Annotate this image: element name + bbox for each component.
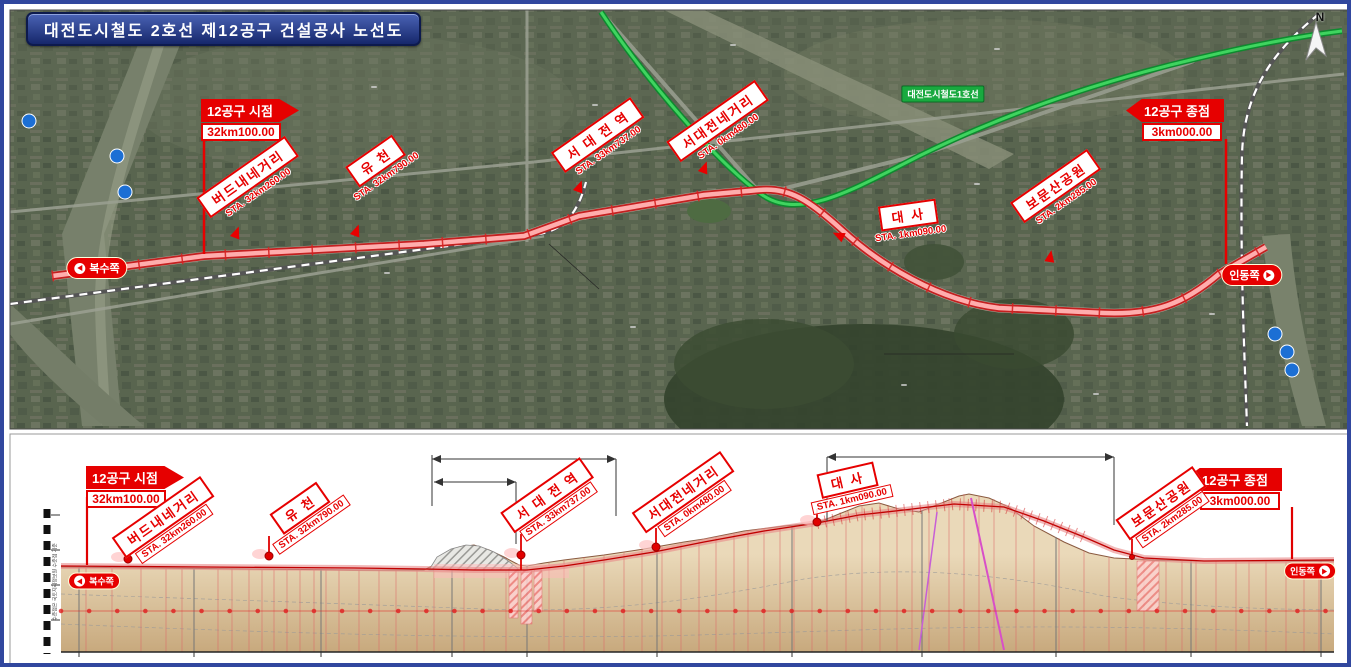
direction-label: 복수쪽 bbox=[89, 260, 119, 276]
district-label bbox=[1209, 313, 1215, 315]
direction-label: 인동쪽 bbox=[1229, 267, 1259, 283]
flag-title: 12공구 시점 bbox=[86, 466, 184, 489]
direction-arrow-icon bbox=[74, 263, 85, 274]
direction-arrow-icon bbox=[1264, 270, 1275, 281]
route-map-sheet: 대전도시철도 2호선 제12공구 건설공사 노선도 대전도시철도1호선 N 버드… bbox=[0, 0, 1351, 667]
station-callout: 서대전네거리 STA. 0km480.00 bbox=[632, 451, 743, 545]
map-section-start-flag: 12공구 시점 32km100.00 bbox=[201, 99, 299, 141]
river-name-badge bbox=[118, 185, 133, 200]
flag-value: 32km100.00 bbox=[201, 123, 281, 141]
district-label bbox=[994, 48, 1000, 50]
river-name-badge bbox=[1285, 363, 1300, 378]
river-name-badge bbox=[1268, 327, 1283, 342]
district-label bbox=[1093, 393, 1099, 395]
river-name-badge bbox=[110, 149, 125, 164]
direction-label: 복수쪽 bbox=[89, 575, 114, 588]
station-callout: 유 천 STA. 32km790.00 bbox=[257, 473, 351, 555]
profile-direction-indong: 인동쪽 bbox=[1284, 563, 1336, 580]
datum-note: 수준점은 국토지리정보원 수준점 기준 bbox=[52, 543, 59, 621]
district-label bbox=[974, 183, 980, 185]
flag-title: 12공구 종점 bbox=[1126, 99, 1224, 122]
district-label bbox=[730, 44, 736, 46]
map-section-end-flag: 12공구 종점 3km000.00 bbox=[1126, 99, 1224, 141]
direction-label: 인동쪽 bbox=[1290, 565, 1315, 578]
station-callout: 대 사 STA. 1km090.00 bbox=[867, 197, 951, 245]
station-callout: 대 사 STA. 1km090.00 bbox=[805, 459, 893, 515]
flag-value: 32km100.00 bbox=[86, 490, 166, 508]
direction-arrow-icon bbox=[1319, 566, 1330, 577]
river-name-badge bbox=[1280, 345, 1295, 360]
station-callout: 보문산공원 STA. 2km285.00 bbox=[1010, 149, 1108, 233]
direction-arrow-icon bbox=[74, 576, 85, 587]
profile-direction-boksu: 복수쪽 bbox=[68, 573, 120, 590]
river-name-badge bbox=[22, 114, 37, 129]
district-label bbox=[592, 104, 598, 106]
district-label bbox=[630, 326, 636, 328]
district-label bbox=[371, 86, 377, 88]
map-direction-indong: 인동쪽 bbox=[1221, 264, 1282, 286]
sheet-title: 대전도시철도 2호선 제12공구 건설공사 노선도 bbox=[26, 12, 421, 46]
flag-title: 12공구 시점 bbox=[201, 99, 299, 122]
station-callout: 서대전네거리 STA. 0km480.00 bbox=[666, 80, 775, 172]
flag-value: 3km000.00 bbox=[1142, 123, 1222, 141]
station-callout: 버드내네거리 STA. 32km260.00 bbox=[196, 136, 305, 228]
station-callout: 유 천 STA. 32km790.00 bbox=[334, 126, 425, 205]
station-callout: 서 대 전 역 STA. 33km737.00 bbox=[551, 97, 651, 183]
label-overlay: 대전도시철도 2호선 제12공구 건설공사 노선도 대전도시철도1호선 N 버드… bbox=[4, 4, 1351, 667]
station-callout: 서 대 전 역 STA. 33km737.00 bbox=[500, 457, 602, 544]
compass-north-label: N bbox=[1316, 10, 1325, 24]
map-direction-boksu: 복수쪽 bbox=[66, 257, 127, 279]
district-label bbox=[901, 384, 907, 386]
district-label bbox=[384, 272, 390, 274]
metro-line1-badge: 대전도시철도1호선 bbox=[901, 86, 984, 103]
